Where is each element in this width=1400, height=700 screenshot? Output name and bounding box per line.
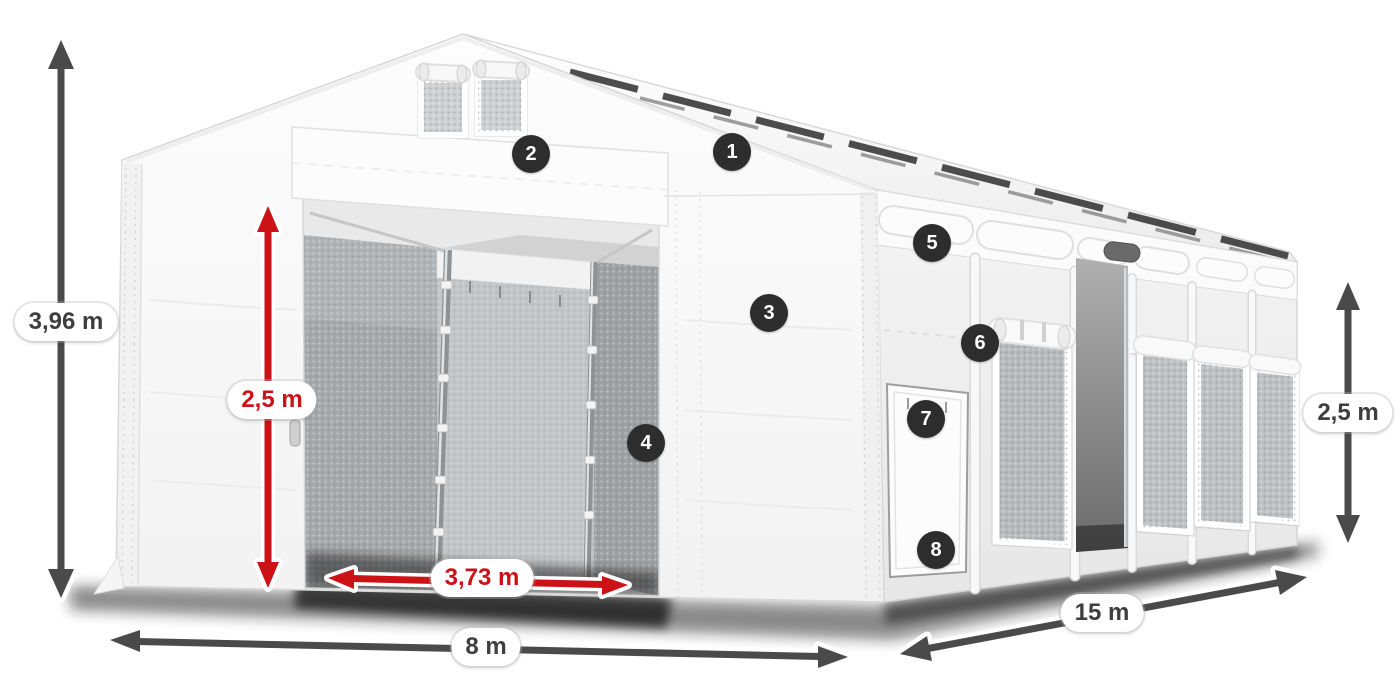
dim-side-length-label: 15 m bbox=[1061, 594, 1144, 632]
corner-post-right bbox=[862, 192, 880, 600]
dim-door-height-label: 2,5 m bbox=[227, 381, 316, 419]
dim-total-height-label: 3,96 m bbox=[15, 303, 118, 341]
side-window-2 bbox=[1136, 345, 1194, 536]
dim-side-height-label: 2,5 m bbox=[1303, 394, 1392, 432]
feature-badge-1: 1 bbox=[713, 133, 751, 171]
feature-badge-6: 6 bbox=[961, 324, 999, 362]
side-window-3 bbox=[1194, 354, 1250, 531]
feature-badge-2: 2 bbox=[512, 135, 550, 173]
feature-badge-3: 3 bbox=[750, 294, 788, 332]
gable-vent-right bbox=[475, 60, 527, 136]
gable-vent-left bbox=[418, 63, 468, 138]
corner-post-left bbox=[122, 163, 142, 587]
skirt-flare bbox=[94, 556, 124, 594]
door-handle bbox=[290, 420, 300, 446]
tent-illustration bbox=[0, 0, 1400, 700]
dim-front-width-label: 8 m bbox=[451, 628, 520, 666]
feature-badge-5: 5 bbox=[913, 224, 951, 262]
dim-door-width-label: 3,73 m bbox=[431, 559, 534, 597]
side-window-1 bbox=[992, 319, 1072, 549]
feature-badge-7: 7 bbox=[907, 400, 945, 438]
feature-badge-8: 8 bbox=[917, 531, 955, 569]
side-window-4 bbox=[1250, 362, 1299, 526]
feature-badge-4: 4 bbox=[627, 424, 665, 462]
front-opening-interior bbox=[303, 198, 659, 596]
tent-dimension-diagram: 1 2 3 4 5 6 7 8 3,96 m 2,5 m 3,73 m 8 m … bbox=[0, 0, 1400, 700]
